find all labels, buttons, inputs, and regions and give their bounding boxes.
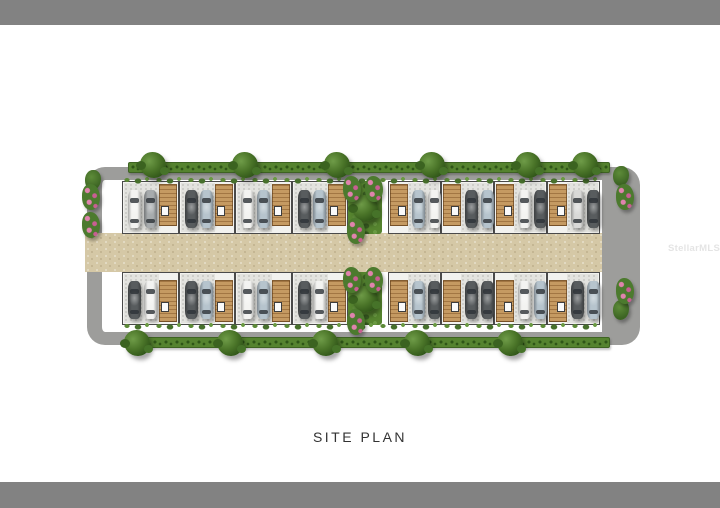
bottom-border-bar — [0, 482, 720, 508]
car-windshield — [589, 198, 598, 203]
parked-car — [298, 190, 311, 228]
flower-bush-icon — [365, 176, 383, 202]
car-rear-window — [130, 219, 139, 223]
parked-car — [257, 190, 270, 228]
flower-bush-icon — [82, 212, 100, 238]
car-rear-window — [536, 219, 545, 223]
townhome-unit — [122, 181, 179, 234]
tree-icon — [404, 330, 430, 356]
utility-pad — [330, 206, 338, 216]
townhome-unit — [441, 272, 494, 325]
utility-pad — [161, 302, 169, 312]
driveway — [514, 183, 545, 232]
car-rear-window — [589, 310, 598, 314]
parked-car — [128, 281, 141, 319]
utility-pad — [217, 206, 225, 216]
driveway — [237, 274, 272, 323]
car-windshield — [243, 289, 252, 294]
utility-pad — [557, 206, 565, 216]
driveway — [237, 183, 272, 232]
townhome-unit — [547, 272, 600, 325]
driveway — [181, 274, 216, 323]
patio — [549, 280, 567, 322]
car-rear-window — [315, 310, 324, 314]
car-windshield — [414, 198, 423, 203]
car-rear-window — [414, 310, 423, 314]
driveway — [461, 274, 492, 323]
patio — [496, 184, 514, 226]
patio — [215, 280, 233, 322]
car-rear-window — [573, 310, 582, 314]
utility-pad — [451, 302, 459, 312]
parked-car — [481, 281, 494, 319]
car-windshield — [202, 289, 211, 294]
parked-car — [144, 190, 157, 228]
car-windshield — [146, 198, 155, 203]
car-rear-window — [414, 219, 423, 223]
patio — [549, 184, 567, 226]
car-rear-window — [536, 310, 545, 314]
parked-car — [257, 281, 270, 319]
parked-car — [185, 190, 198, 228]
utility-pad — [504, 302, 512, 312]
car-rear-window — [300, 219, 309, 223]
driveway — [181, 183, 216, 232]
parked-car — [428, 281, 441, 319]
townhome-unit — [122, 272, 179, 325]
patio — [159, 184, 177, 226]
car-windshield — [315, 198, 324, 203]
patio — [443, 184, 461, 226]
car-rear-window — [243, 310, 252, 314]
tree-icon — [312, 330, 338, 356]
watermark: StellarMLS — [668, 243, 720, 254]
main-road — [85, 233, 602, 272]
parked-car — [412, 190, 425, 228]
utility-pad — [398, 302, 406, 312]
car-windshield — [520, 198, 529, 203]
car-rear-window — [315, 219, 324, 223]
site-plan-title: SITE PLAN — [0, 429, 720, 445]
car-rear-window — [467, 219, 476, 223]
car-rear-window — [259, 219, 268, 223]
parked-car — [518, 281, 531, 319]
driveway — [124, 274, 159, 323]
driveway — [408, 274, 439, 323]
patio — [272, 280, 290, 322]
car-windshield — [202, 198, 211, 203]
utility-pad — [398, 206, 406, 216]
parked-car — [128, 190, 141, 228]
car-windshield — [414, 289, 423, 294]
car-windshield — [243, 198, 252, 203]
parked-car — [571, 281, 584, 319]
car-rear-window — [300, 310, 309, 314]
car-windshield — [187, 198, 196, 203]
car-windshield — [130, 289, 139, 294]
driveway — [461, 183, 492, 232]
car-rear-window — [520, 310, 529, 314]
parked-car — [465, 190, 478, 228]
car-rear-window — [243, 219, 252, 223]
patio — [496, 280, 514, 322]
flower-bush-icon — [616, 184, 634, 210]
parked-car — [313, 281, 326, 319]
car-windshield — [573, 289, 582, 294]
flower-bush-icon — [82, 184, 100, 210]
parked-car — [185, 281, 198, 319]
driveway — [567, 274, 598, 323]
patio — [443, 280, 461, 322]
utility-pad — [451, 206, 459, 216]
driveway — [124, 183, 159, 232]
tree-icon — [232, 152, 258, 178]
parked-car — [571, 190, 584, 228]
patio — [272, 184, 290, 226]
site-plan — [85, 148, 645, 360]
car-rear-window — [202, 219, 211, 223]
flower-bush-icon — [343, 267, 361, 293]
tree-icon — [572, 152, 598, 178]
utility-pad — [504, 206, 512, 216]
car-rear-window — [467, 310, 476, 314]
car-windshield — [300, 289, 309, 294]
townhome-unit — [179, 181, 236, 234]
patio — [390, 184, 408, 226]
tree-icon — [124, 330, 150, 356]
car-windshield — [467, 289, 476, 294]
driveway — [294, 274, 329, 323]
car-rear-window — [146, 219, 155, 223]
car-windshield — [300, 198, 309, 203]
car-windshield — [259, 289, 268, 294]
flower-bush-icon — [347, 218, 365, 244]
tree-icon — [419, 152, 445, 178]
patio — [390, 280, 408, 322]
flower-bush-icon — [616, 278, 634, 304]
patio — [215, 184, 233, 226]
hedge-south — [128, 337, 610, 348]
parked-car — [200, 281, 213, 319]
utility-pad — [274, 206, 282, 216]
parked-car — [587, 190, 600, 228]
tree-icon — [497, 330, 523, 356]
parked-car — [534, 190, 547, 228]
flower-bush-icon — [347, 309, 365, 335]
car-rear-window — [202, 310, 211, 314]
parked-car — [518, 190, 531, 228]
parked-car — [412, 281, 425, 319]
tree-icon — [140, 152, 166, 178]
townhome-unit — [292, 272, 349, 325]
car-windshield — [483, 289, 492, 294]
townhome-unit — [292, 181, 349, 234]
parked-car — [298, 281, 311, 319]
utility-pad — [557, 302, 565, 312]
tree-icon — [324, 152, 350, 178]
car-rear-window — [520, 219, 529, 223]
utility-pad — [274, 302, 282, 312]
townhome-unit — [441, 181, 494, 234]
parked-car — [200, 190, 213, 228]
parked-car — [587, 281, 600, 319]
car-windshield — [130, 198, 139, 203]
car-windshield — [536, 289, 545, 294]
car-rear-window — [146, 310, 155, 314]
townhome-unit — [179, 272, 236, 325]
car-rear-window — [483, 310, 492, 314]
car-windshield — [187, 289, 196, 294]
tree-icon — [217, 330, 243, 356]
parked-car — [144, 281, 157, 319]
car-rear-window — [187, 310, 196, 314]
townhome-unit — [494, 181, 547, 234]
car-rear-window — [430, 219, 439, 223]
townhome-unit — [494, 272, 547, 325]
car-windshield — [315, 289, 324, 294]
car-windshield — [573, 198, 582, 203]
parked-car — [428, 190, 441, 228]
car-rear-window — [589, 219, 598, 223]
driveway — [514, 274, 545, 323]
car-windshield — [483, 198, 492, 203]
car-rear-window — [187, 219, 196, 223]
top-border-bar — [0, 0, 720, 25]
townhome-unit — [388, 272, 441, 325]
car-windshield — [589, 289, 598, 294]
car-rear-window — [259, 310, 268, 314]
car-rear-window — [430, 310, 439, 314]
car-windshield — [536, 198, 545, 203]
utility-pad — [330, 302, 338, 312]
driveway — [294, 183, 329, 232]
tree-icon — [515, 152, 541, 178]
parked-car — [241, 281, 254, 319]
parked-car — [534, 281, 547, 319]
car-windshield — [430, 198, 439, 203]
car-windshield — [146, 289, 155, 294]
patio — [159, 280, 177, 322]
townhome-unit — [235, 181, 292, 234]
car-rear-window — [573, 219, 582, 223]
car-rear-window — [130, 310, 139, 314]
townhome-unit — [235, 272, 292, 325]
utility-pad — [161, 206, 169, 216]
parked-car — [313, 190, 326, 228]
parked-car — [481, 190, 494, 228]
parked-car — [465, 281, 478, 319]
car-windshield — [520, 289, 529, 294]
flower-bush-icon — [343, 176, 361, 202]
car-windshield — [430, 289, 439, 294]
townhome-unit — [388, 181, 441, 234]
car-windshield — [467, 198, 476, 203]
driveway — [408, 183, 439, 232]
driveway — [567, 183, 598, 232]
car-windshield — [259, 198, 268, 203]
townhome-unit — [547, 181, 600, 234]
car-rear-window — [483, 219, 492, 223]
flower-bush-icon — [365, 267, 383, 293]
utility-pad — [217, 302, 225, 312]
parked-car — [241, 190, 254, 228]
